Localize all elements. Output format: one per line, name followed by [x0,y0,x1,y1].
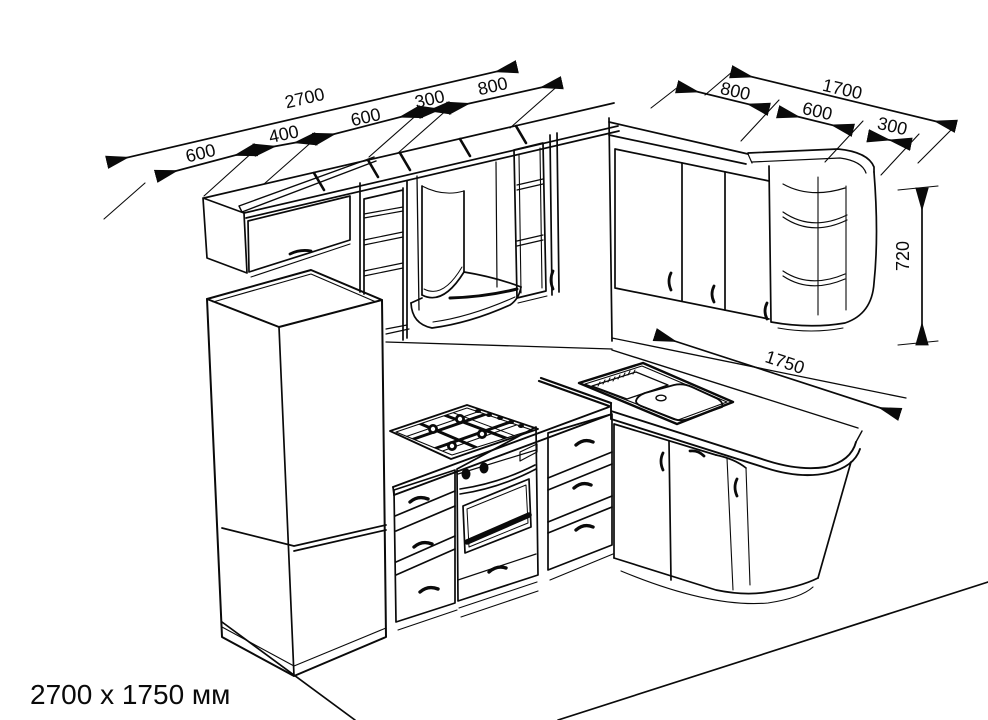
svg-text:800: 800 [718,78,752,104]
svg-text:1700: 1700 [821,75,865,103]
svg-text:600: 600 [800,98,834,124]
svg-text:2700: 2700 [283,84,327,112]
svg-text:300: 300 [875,113,909,139]
svg-text:600: 600 [349,104,383,130]
svg-text:720: 720 [893,241,913,271]
svg-text:2700 x 1750 мм: 2700 x 1750 мм [30,679,230,710]
